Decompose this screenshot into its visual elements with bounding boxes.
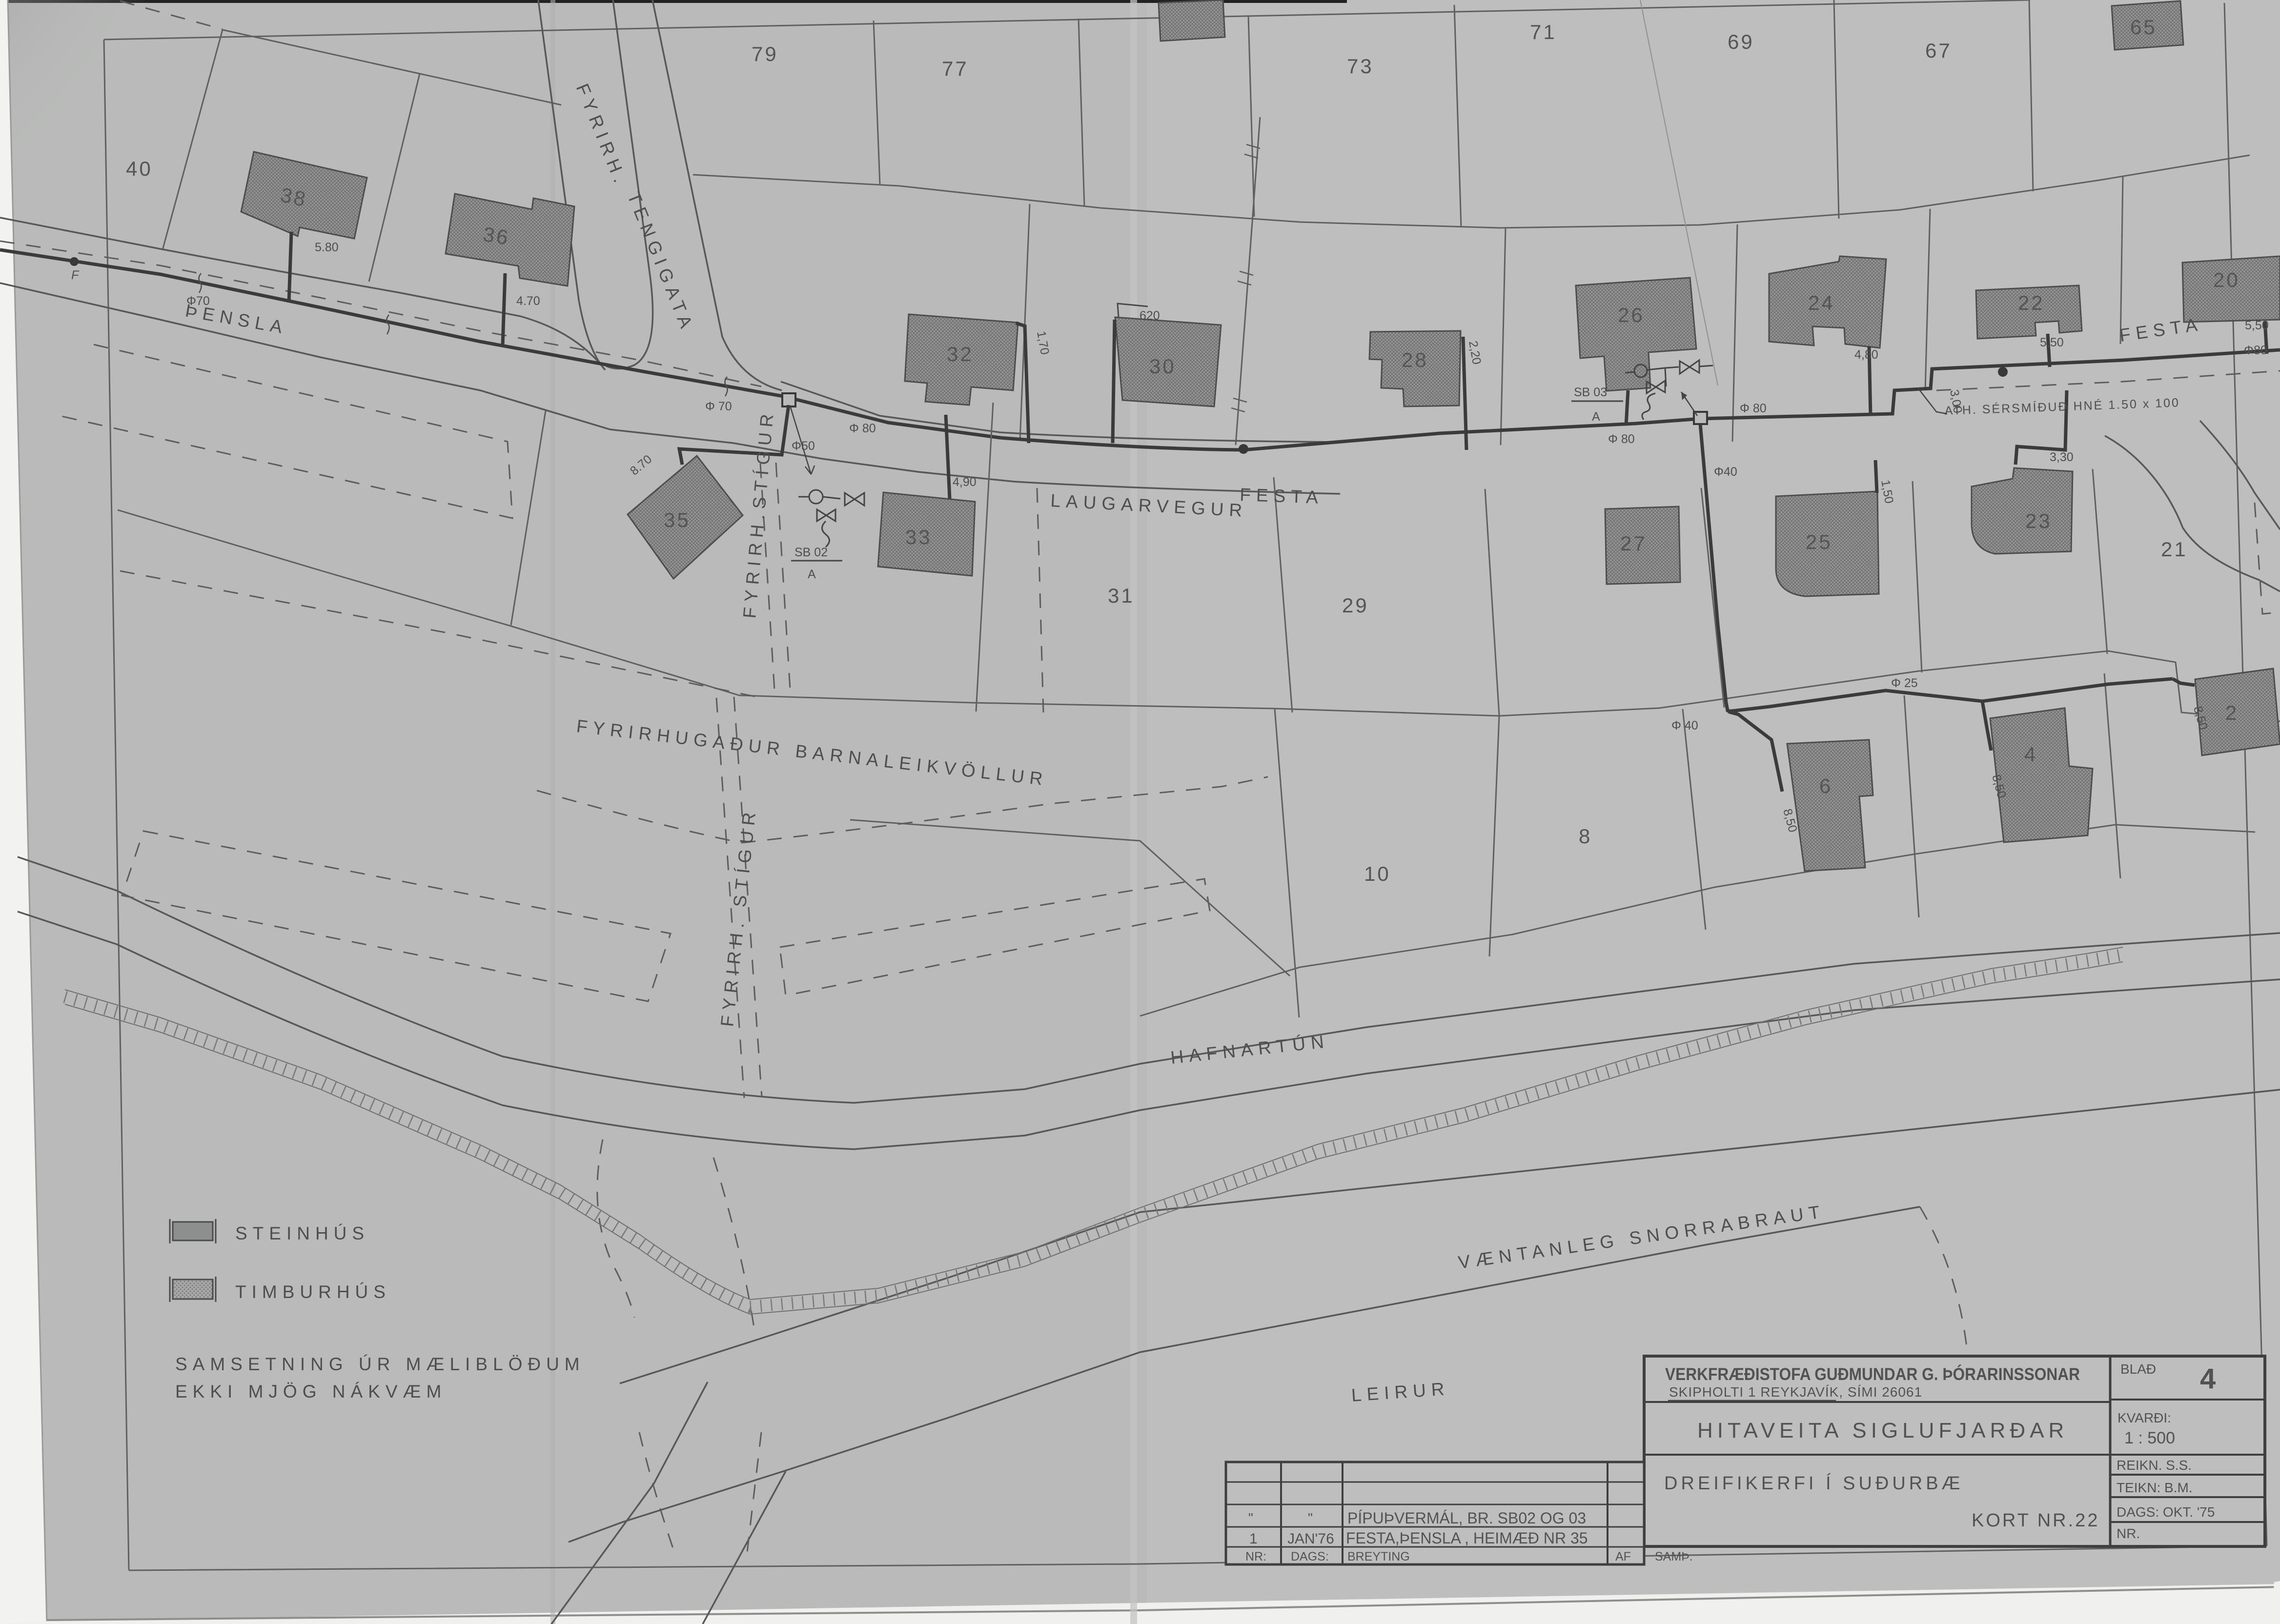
svg-text:DAGS:: DAGS: xyxy=(1291,1550,1329,1563)
svg-text:8: 8 xyxy=(1579,825,1592,848)
svg-text:STEINHÚS: STEINHÚS xyxy=(235,1223,369,1243)
svg-text:TEIKN: B.M.: TEIKN: B.M. xyxy=(2117,1480,2193,1495)
svg-text:3,30: 3,30 xyxy=(2050,450,2074,464)
svg-text:6: 6 xyxy=(1819,774,1832,797)
svg-text:Φ70: Φ70 xyxy=(186,294,210,308)
svg-text:BLAÐ: BLAÐ xyxy=(2120,1361,2156,1377)
svg-text:KORT NR.22: KORT NR.22 xyxy=(1972,1510,2099,1531)
svg-text:NR:: NR: xyxy=(1245,1550,1266,1563)
svg-text:5,50: 5,50 xyxy=(2040,336,2064,349)
svg-text:Φ50: Φ50 xyxy=(792,439,815,453)
svg-text:Φ80: Φ80 xyxy=(2244,344,2267,357)
svg-text:20: 20 xyxy=(2213,268,2240,291)
svg-text:1: 1 xyxy=(1249,1531,1258,1547)
svg-text:HITAVEITA SIGLUFJARÐAR: HITAVEITA SIGLUFJARÐAR xyxy=(1697,1419,2068,1442)
svg-text:33: 33 xyxy=(905,526,932,548)
svg-text:VERKFRÆÐISTOFA GUÐMUNDAR G. ÞÓ: VERKFRÆÐISTOFA GUÐMUNDAR G. ÞÓRARINSSONA… xyxy=(1665,1364,2080,1384)
svg-text:BREYTING: BREYTING xyxy=(1347,1550,1410,1563)
svg-text:Φ 25: Φ 25 xyxy=(1891,676,1918,690)
svg-text:EKKI MJÖG NÁKVÆM: EKKI MJÖG NÁKVÆM xyxy=(175,1381,447,1401)
svg-text:65: 65 xyxy=(2130,16,2157,39)
svg-text:71: 71 xyxy=(1530,20,1557,43)
svg-text:DREIFIKERFI Í SUÐURBÆ: DREIFIKERFI Í SUÐURBÆ xyxy=(1664,1473,1964,1494)
svg-text:NR.: NR. xyxy=(2117,1526,2140,1541)
svg-text:25: 25 xyxy=(1806,530,1832,553)
svg-text:79: 79 xyxy=(752,42,778,65)
svg-text:30: 30 xyxy=(1149,355,1176,378)
svg-text:F: F xyxy=(71,268,80,282)
svg-text:4,90: 4,90 xyxy=(953,475,977,489)
svg-text:": " xyxy=(1308,1510,1313,1525)
svg-text:": " xyxy=(1248,1510,1253,1525)
svg-text:4,80: 4,80 xyxy=(1854,348,1878,362)
svg-text:22: 22 xyxy=(2018,291,2045,314)
svg-text:AF: AF xyxy=(1615,1550,1631,1563)
svg-text:FESTA: FESTA xyxy=(1240,485,1324,507)
svg-text:5,50: 5,50 xyxy=(2245,319,2269,332)
svg-text:73: 73 xyxy=(1347,55,1374,78)
svg-text:1 : 500: 1 : 500 xyxy=(2124,1429,2175,1447)
svg-text:2: 2 xyxy=(2225,701,2239,724)
svg-text:67: 67 xyxy=(1925,39,1952,62)
svg-text:SAMÞ.: SAMÞ. xyxy=(1655,1550,1693,1563)
svg-text:24: 24 xyxy=(1808,291,1835,314)
svg-text:FESTA,ÞENSLA , HEIMÆÐ NR 35: FESTA,ÞENSLA , HEIMÆÐ NR 35 xyxy=(1346,1529,1588,1547)
svg-text:36: 36 xyxy=(482,223,511,249)
svg-text:27: 27 xyxy=(1620,532,1647,555)
svg-text:35: 35 xyxy=(664,508,691,531)
svg-text:26: 26 xyxy=(1618,304,1645,326)
svg-text:77: 77 xyxy=(942,57,969,80)
svg-text:Φ 70: Φ 70 xyxy=(705,400,732,413)
svg-text:21: 21 xyxy=(2161,538,2188,561)
svg-text:Φ 80: Φ 80 xyxy=(849,422,876,435)
svg-text:A: A xyxy=(1592,410,1600,424)
svg-text:SB 03: SB 03 xyxy=(1574,386,1607,399)
svg-text:Φ 80: Φ 80 xyxy=(1740,402,1767,415)
svg-text:10: 10 xyxy=(1364,862,1391,885)
svg-text:40: 40 xyxy=(126,157,153,180)
svg-text:SAMSETNING ÚR MÆLIBLÖÐUM: SAMSETNING ÚR MÆLIBLÖÐUM xyxy=(175,1354,585,1374)
svg-text:4: 4 xyxy=(2024,743,2037,766)
svg-text:SB 02: SB 02 xyxy=(794,546,828,559)
svg-text:28: 28 xyxy=(1402,348,1428,371)
svg-text:Φ 80: Φ 80 xyxy=(1608,432,1635,446)
svg-text:5.80: 5.80 xyxy=(315,241,339,254)
svg-text:TIMBURHÚS: TIMBURHÚS xyxy=(235,1282,391,1302)
svg-text:31: 31 xyxy=(1108,584,1135,607)
svg-text:DAGS: OKT. '75: DAGS: OKT. '75 xyxy=(2117,1504,2215,1520)
svg-text:32: 32 xyxy=(947,343,974,365)
svg-text:620: 620 xyxy=(1140,309,1160,323)
svg-text:4.70: 4.70 xyxy=(516,294,540,308)
svg-text:A: A xyxy=(808,568,816,581)
svg-text:PÍPUÞVERMÁL, BR. SB02 OG 03: PÍPUÞVERMÁL, BR. SB02 OG 03 xyxy=(1347,1509,1586,1527)
svg-text:SKIPHOLTI 1 REYKJAVÍK, SÍMI 26: SKIPHOLTI 1 REYKJAVÍK, SÍMI 26061 xyxy=(1669,1384,1922,1400)
svg-text:69: 69 xyxy=(1728,30,1754,53)
svg-text:4: 4 xyxy=(2200,1363,2216,1395)
svg-text:REIKN. S.S.: REIKN. S.S. xyxy=(2117,1458,2192,1473)
svg-text:29: 29 xyxy=(1342,594,1369,617)
svg-text:Φ 40: Φ 40 xyxy=(1671,719,1698,732)
svg-text:23: 23 xyxy=(2025,509,2052,532)
svg-text:KVARÐI:: KVARÐI: xyxy=(2117,1410,2171,1425)
svg-text:Φ40: Φ40 xyxy=(1714,465,1737,479)
svg-text:JAN'76: JAN'76 xyxy=(1287,1531,1334,1547)
